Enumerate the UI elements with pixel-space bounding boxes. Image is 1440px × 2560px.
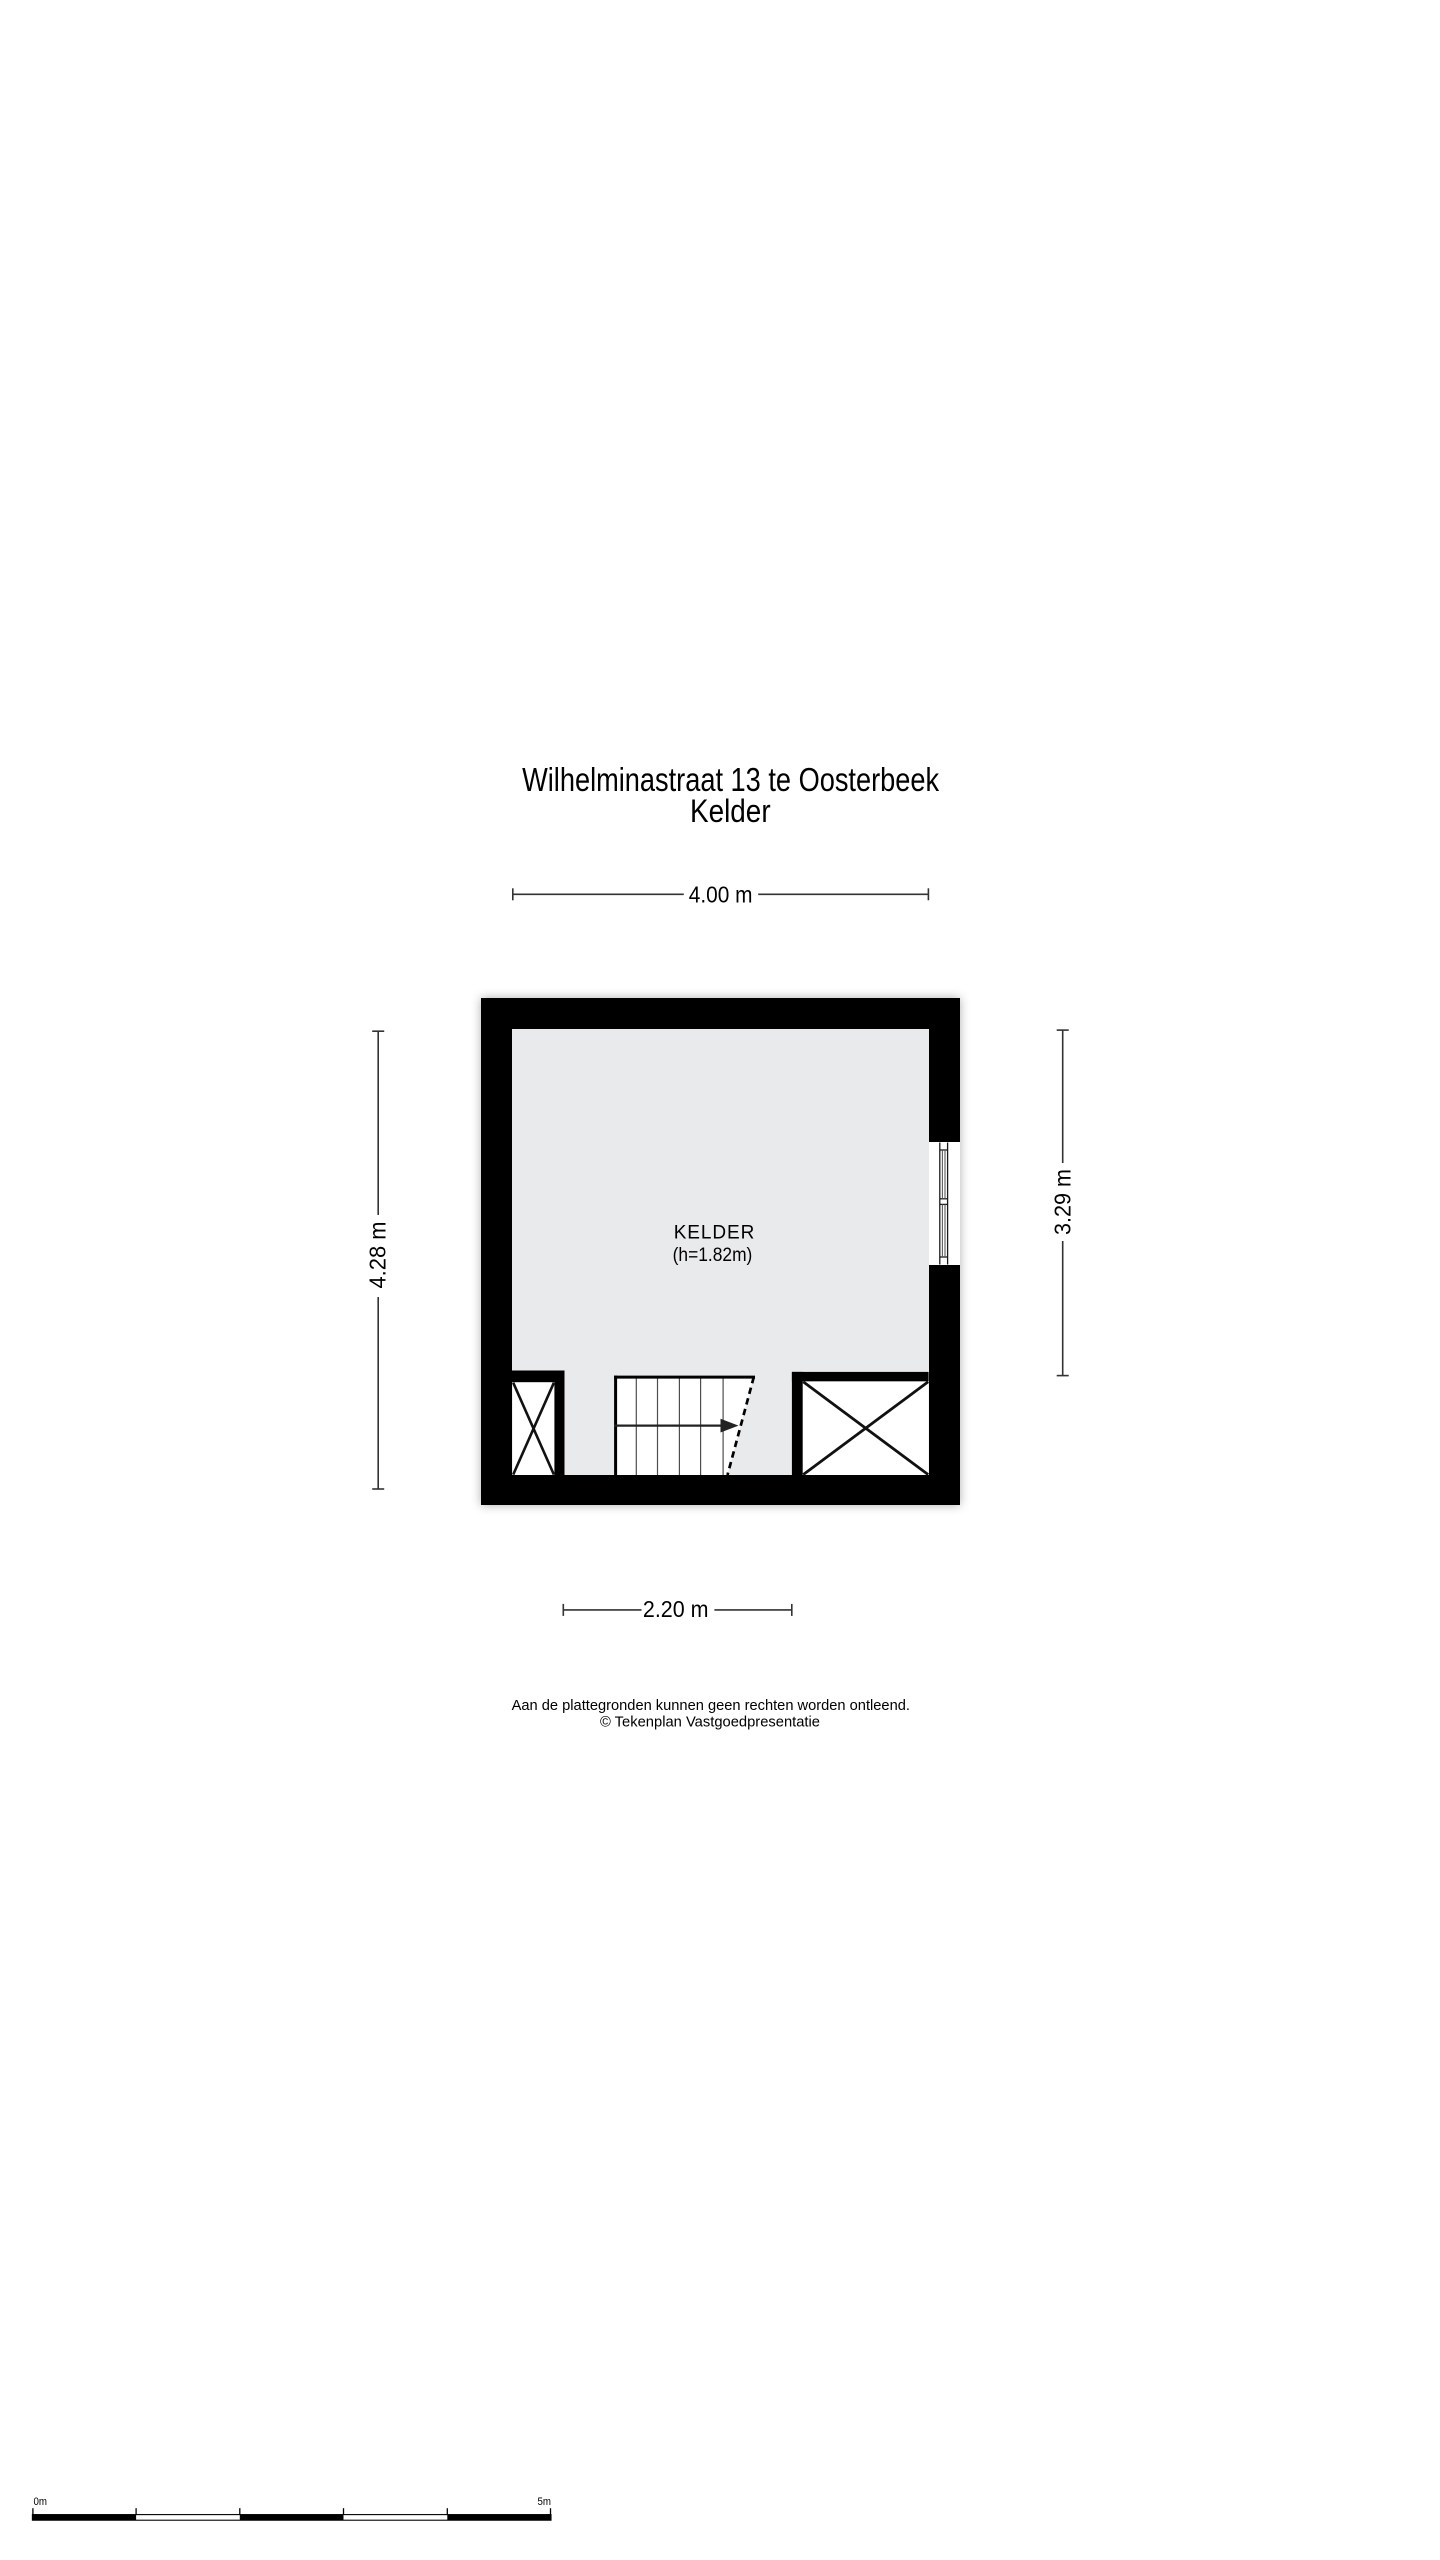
svg-text:Aan de plattegronden kunnen ge: Aan de plattegronden kunnen geen rechten…	[512, 1698, 910, 1714]
svg-text:(h=1.82m): (h=1.82m)	[673, 1245, 753, 1266]
svg-text:© Tekenplan Vastgoedpresentati: © Tekenplan Vastgoedpresentatie	[600, 1715, 820, 1731]
svg-text:2.20 m: 2.20 m	[643, 1596, 709, 1622]
svg-text:4.00 m: 4.00 m	[689, 882, 753, 908]
svg-text:4.28 m: 4.28 m	[365, 1222, 391, 1289]
svg-text:3.29 m: 3.29 m	[1050, 1169, 1076, 1235]
svg-text:Kelder: Kelder	[690, 793, 771, 829]
svg-text:5m: 5m	[538, 2496, 552, 2508]
svg-text:0m: 0m	[34, 2496, 48, 2508]
svg-text:KELDER: KELDER	[674, 1223, 755, 1244]
